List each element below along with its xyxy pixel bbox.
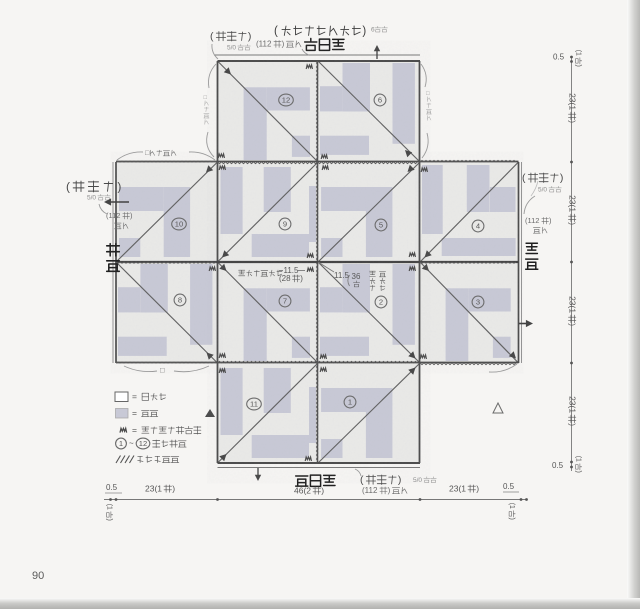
svg-text:0.5: 0.5	[553, 53, 565, 62]
svg-text:0.5: 0.5	[503, 482, 515, 491]
svg-text:): )	[567, 423, 577, 426]
svg-text:23(1: 23(1	[567, 296, 577, 313]
svg-text:5/0: 5/0	[538, 186, 547, 193]
svg-text:(: (	[210, 31, 214, 43]
svg-text:): )	[567, 323, 577, 326]
svg-text:(112: (112	[525, 216, 539, 225]
svg-text:(1: (1	[574, 50, 581, 56]
svg-text:1: 1	[119, 439, 123, 448]
svg-text:(1: (1	[508, 503, 515, 509]
svg-text:): )	[567, 222, 577, 225]
svg-text:): )	[560, 172, 564, 184]
svg-text:): )	[248, 31, 252, 43]
svg-text:(1: (1	[105, 504, 112, 510]
svg-text:23(1: 23(1	[145, 484, 162, 494]
svg-text:5/0: 5/0	[413, 477, 422, 484]
svg-text:~: ~	[129, 439, 134, 448]
svg-text:(: (	[66, 179, 70, 193]
svg-text:): )	[362, 25, 366, 37]
svg-text:): )	[105, 518, 112, 520]
svg-text:90: 90	[32, 570, 44, 582]
svg-text:23(1: 23(1	[567, 396, 577, 413]
svg-text:5/0: 5/0	[87, 194, 96, 201]
svg-text:(112: (112	[256, 40, 272, 49]
svg-text:=: =	[132, 425, 137, 435]
svg-text:): )	[282, 40, 285, 49]
svg-text:23(1: 23(1	[449, 484, 466, 494]
svg-text:□: □	[204, 95, 208, 101]
svg-text:23(1: 23(1	[567, 195, 577, 212]
svg-text:(1: (1	[574, 456, 581, 462]
svg-text:): )	[574, 470, 581, 472]
svg-text:): )	[476, 484, 479, 494]
svg-text:): )	[321, 486, 324, 496]
svg-text:□: □	[426, 91, 430, 97]
svg-text:□: □	[160, 366, 165, 375]
svg-text:46(2: 46(2	[294, 486, 311, 496]
svg-text:): )	[388, 486, 391, 495]
svg-text:): )	[574, 64, 581, 66]
svg-text:(: (	[274, 25, 278, 37]
svg-text:(112: (112	[362, 486, 378, 495]
svg-text:): )	[398, 474, 402, 486]
svg-text:6: 6	[371, 26, 375, 33]
svg-text:=: =	[132, 392, 137, 402]
svg-text:23(1: 23(1	[567, 93, 577, 110]
svg-text:=: =	[132, 408, 137, 418]
svg-text:): )	[172, 484, 175, 494]
svg-text:0.5: 0.5	[552, 461, 564, 470]
svg-text:0.5: 0.5	[106, 483, 118, 492]
svg-text:): )	[567, 120, 577, 123]
svg-text:): )	[508, 517, 515, 519]
svg-text:5/0: 5/0	[227, 44, 236, 51]
svg-text:12: 12	[139, 439, 147, 448]
svg-text:(: (	[522, 172, 526, 184]
